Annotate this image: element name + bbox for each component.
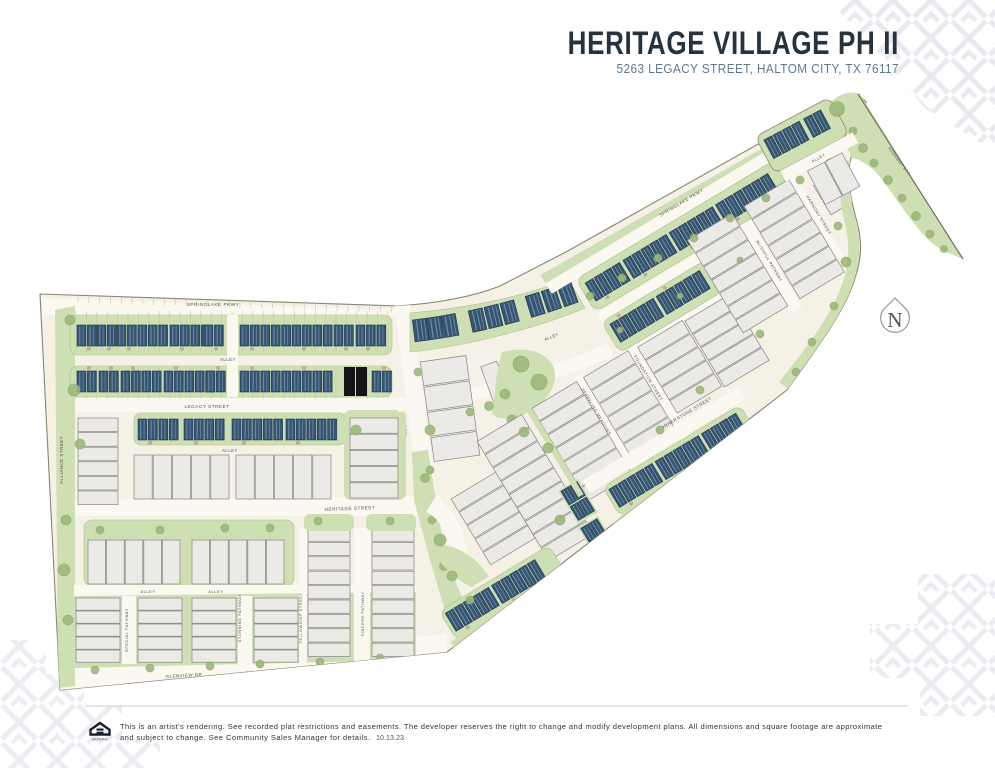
svg-text:ALLEY: ALLEY [208,589,223,594]
svg-text:and subject to change. See Com: and subject to change. See Community Sal… [120,733,370,742]
svg-text:ALLIANCE STREET: ALLIANCE STREET [59,436,64,484]
svg-text:STUNNING PATHWAY: STUNNING PATHWAY [237,594,242,642]
svg-text:N: N [887,308,902,332]
svg-text:HISTORYMAKER: HISTORYMAKER [92,738,110,742]
svg-text:5263 LEGACY STREET, HALTOM CIT: 5263 LEGACY STREET, HALTOM CITY, TX 7611… [617,61,899,76]
svg-text:ALLEY: ALLEY [222,448,238,453]
svg-text:FELLOWSHIP STREET: FELLOWSHIP STREET [298,593,303,644]
svg-text:ALLEY: ALLEY [220,357,236,362]
svg-text:HERITAGE VILLAGE PH II: HERITAGE VILLAGE PH II [568,25,899,61]
svg-text:LEGACY STREET: LEGACY STREET [184,404,229,409]
svg-text:10.13.23: 10.13.23 [376,733,404,742]
svg-text:SPECIAL PATHWAY: SPECIAL PATHWAY [124,608,129,652]
svg-text:ALLEY: ALLEY [140,589,155,594]
svg-text:This is an artist's rendering.: This is an artist's rendering. See recor… [120,722,882,731]
svg-text:SPRINGLAKE PKWY: SPRINGLAKE PKWY [187,302,239,307]
svg-text:SINCERE PATHWAY: SINCERE PATHWAY [360,592,365,637]
